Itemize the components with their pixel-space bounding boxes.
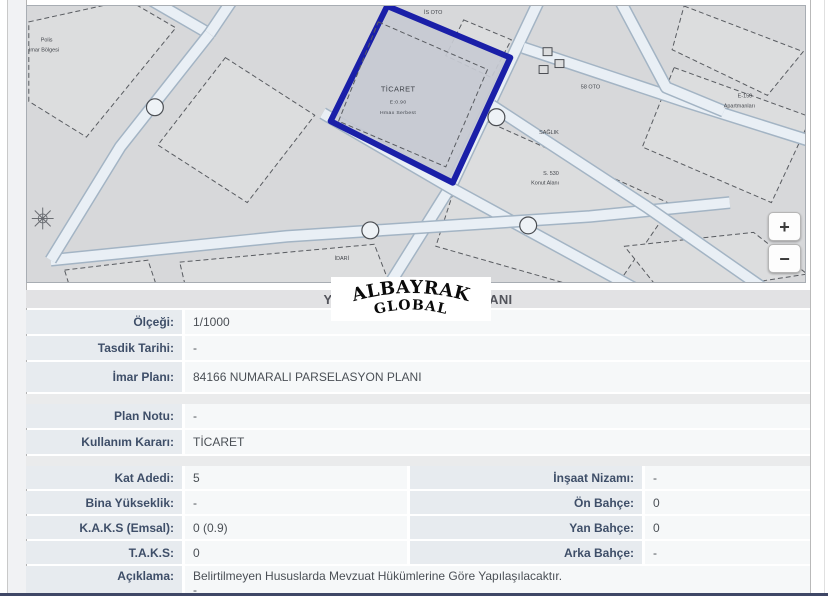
watermark-text-bottom: GLOBAL [373,297,450,318]
zoom-out-button[interactable]: − [768,244,801,273]
zoom-in-button[interactable]: + [768,212,801,241]
field-label: Arka Bahçe: [410,541,642,564]
field-value: - [645,466,810,489]
map-label: Polis [41,38,53,44]
page-right-border-faint [824,0,825,596]
field-value: - [185,404,810,428]
watermark-svg: ALBAYRAK GLOBAL [331,277,491,321]
map-label: SAĞLIK [539,129,559,136]
table-section-divider [26,394,810,404]
field-label: Yan Bahçe: [410,516,642,539]
field-value: - [645,541,810,564]
field-value: Belirtilmeyen Hususlarda Mevzuat Hükümle… [185,566,810,595]
field-value: 0 [645,516,810,539]
map-label: Konut Alanı [531,181,559,187]
field-value: - [185,336,810,360]
road-number-bubble [362,222,379,239]
field-label: Ön Bahçe: [410,491,642,514]
parcel-label-line3: Hmax Serbest [380,110,416,116]
field-label: Plan Notu: [26,404,182,428]
table-row: Açıklama: Belirtilmeyen Hususlarda Mevzu… [26,566,810,595]
map-label: 58 OTO [581,84,600,90]
table-section-divider [26,456,810,466]
table-row: T.A.K.S: 0 Arka Bahçe: - [26,541,810,564]
map-structure-square [539,66,548,74]
watermark-logo: ALBAYRAK GLOBAL [331,277,491,321]
map-label: İDARİ [335,255,350,262]
table-row: Kat Adedi: 5 İnşaat Nizamı: - [26,466,810,489]
page-left-gutter [7,0,27,596]
field-label: K.A.K.S (Emsal): [26,516,182,539]
map-label: İS OTO [424,9,442,16]
field-label: Bina Yükseklik: [26,491,182,514]
table-row: Bina Yükseklik: - Ön Bahçe: 0 [26,491,810,514]
parcel-label-line2: E:0.90 [390,99,407,105]
field-value: - [185,491,407,514]
compass-icon [41,217,44,220]
map-zoom-controls: + − [768,212,801,273]
field-label: Kat Adedi: [26,466,182,489]
zoning-map[interactable]: TİCARETE:0.90Hmax SerbestİS OTO58 OTOSAĞ… [26,5,806,283]
road-number-bubble [488,109,505,126]
road-number-bubble [146,99,163,116]
field-value: 0 [645,491,810,514]
map-structure-square [543,48,552,56]
field-label: İnşaat Nizamı: [410,466,642,489]
road-number-bubble [520,217,537,234]
zoning-map-canvas[interactable]: TİCARETE:0.90Hmax SerbestİS OTO58 OTOSAĞ… [27,6,805,282]
page-right-border [810,0,811,596]
field-label: İmar Planı: [26,362,182,392]
table-row: Tasdik Tarihi: - [26,336,810,360]
field-value: 0 (0.9) [185,516,407,539]
table-row: İmar Planı: 84166 NUMARALI PARSELASYON P… [26,362,810,392]
field-value: TİCARET [185,430,810,454]
plan-info-table: YÜRÜRLÜKTEKİ İMAR PLANI Ölçeği: 1/1000 T… [26,290,810,597]
parcel-label-line1: TİCARET [381,84,416,93]
map-label: S. 530 [543,171,559,177]
map-label: E-150 [738,93,753,99]
field-label: T.A.K.S: [26,541,182,564]
table-row: Plan Notu: - [26,404,810,428]
field-label: Açıklama: [26,566,182,595]
field-value: 5 [185,466,407,489]
table-row: K.A.K.S (Emsal): 0 (0.9) Yan Bahçe: 0 [26,516,810,539]
field-label: Ölçeği: [26,310,182,334]
field-value: 84166 NUMARALI PARSELASYON PLANI [185,362,810,392]
map-label: Apartmanları [724,103,755,109]
field-value: 0 [185,541,407,564]
field-label: Kullanım Kararı: [26,430,182,454]
table-row: Kullanım Kararı: TİCARET [26,430,810,454]
field-value: 1/1000 [185,310,810,334]
map-structure-square [555,60,564,68]
field-label: Tasdik Tarihi: [26,336,182,360]
map-label: İmar Bölgesi [29,47,59,54]
aciklama-line1: Belirtilmeyen Hususlarda Mevzuat Hükümle… [193,569,562,583]
